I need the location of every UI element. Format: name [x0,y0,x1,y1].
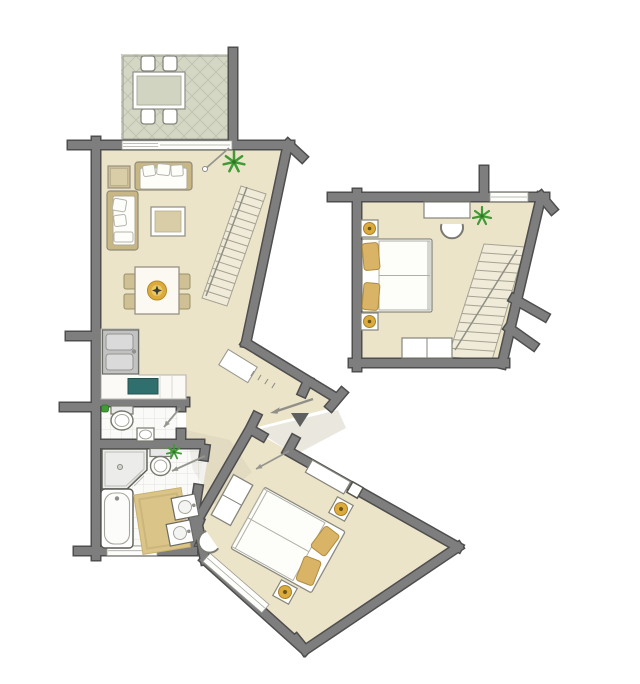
shower-drain [117,464,122,469]
balcony-door-handle [203,167,208,172]
loveseat-pillow [112,198,127,212]
kitchen-faucet [132,349,136,353]
pillow [362,282,380,310]
sofa-pillow [171,165,184,177]
sink-basin [106,334,133,350]
dining-chair [124,274,136,289]
sofa [135,162,192,190]
outdoor-chair [163,109,177,124]
wc-soap-plant [102,405,109,412]
pillow [362,242,380,270]
loveseat-pillow [113,214,126,226]
cooktop [128,379,158,395]
sink-basin [106,354,133,370]
loveseat [107,191,138,250]
loveseat-cushion [114,232,133,242]
dining-chair [178,294,190,309]
bath-toilet-bowl [151,457,171,476]
dining-chair [124,294,136,309]
tub-faucet [115,496,119,500]
coffee-table [151,207,185,236]
wc-toilet-bowl [111,411,133,430]
chair-bedroom-upper [441,224,463,238]
floor-plan-svg [0,0,640,684]
floor-plan-page [0,0,640,684]
sofa-pillow [142,164,155,177]
sofa-pillow [156,163,170,175]
outdoor-chair [163,56,177,71]
outdoor-chair [141,56,155,71]
vanity-sink [171,494,199,520]
dining-chair [178,274,190,289]
desk [424,202,470,218]
double-bed-upper [362,239,432,312]
vanity-sink [166,520,194,546]
outdoor-chair [141,109,155,124]
